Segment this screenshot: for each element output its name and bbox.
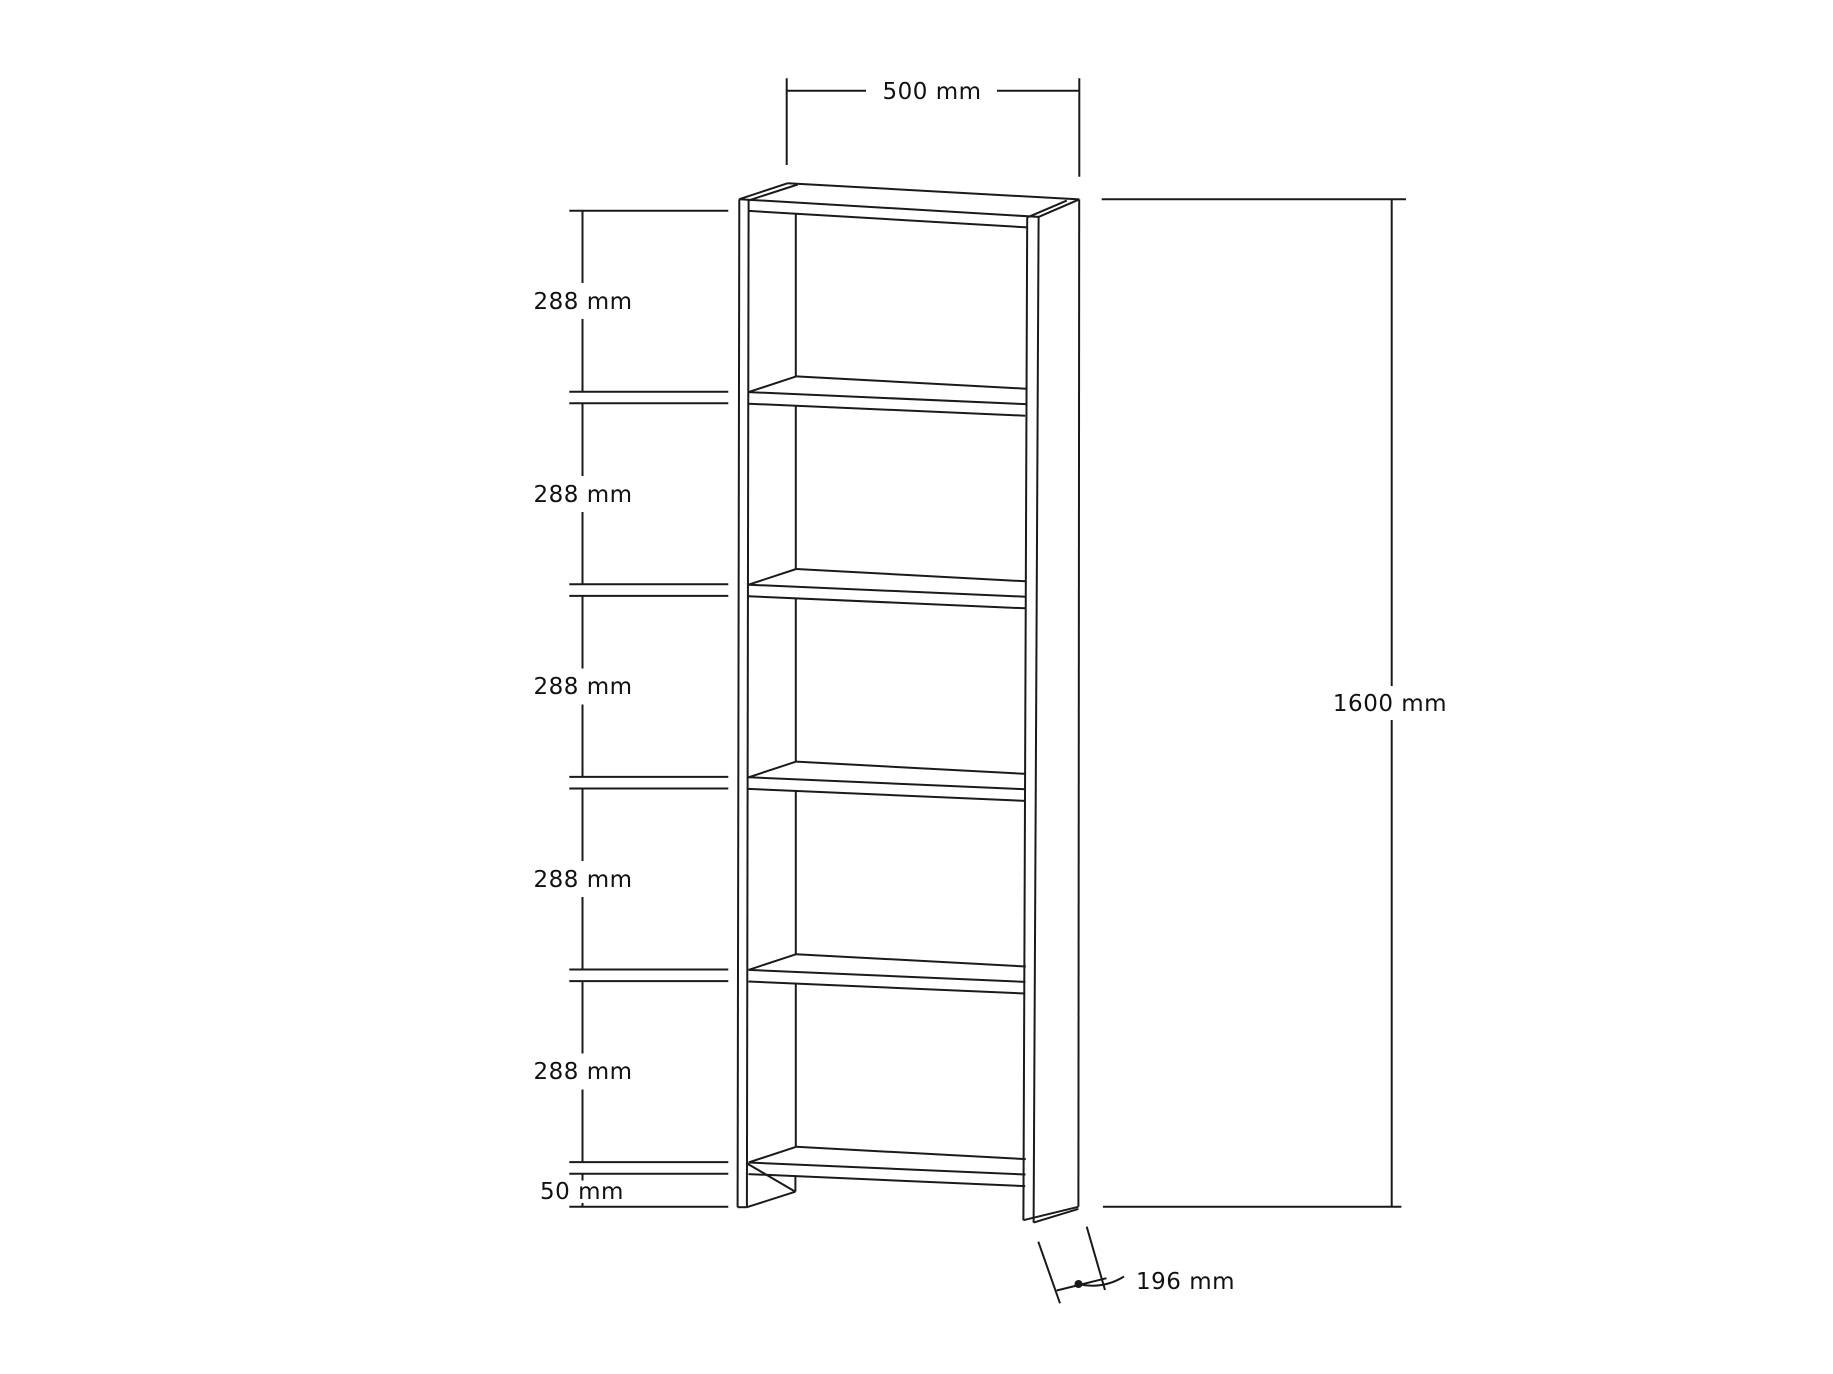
shelf-5 [749,1147,1026,1186]
bookshelf-dimension-diagram: 500 mm 1600 mm 288 mm 288 mm 288 mm 288 … [0,0,1833,1374]
shelf-spacing-label-5: 288 mm [533,1059,632,1085]
shelf-3 [749,762,1026,801]
shelf-spacing-label-3: 288 mm [533,674,632,700]
right-panel-top-outer-diagonal [1039,199,1080,217]
right-panel-top-inner-diagonal [1027,201,1067,218]
depth-dimension-label: 196 mm [1136,1269,1235,1295]
bottom-clearance-label: 50 mm [540,1179,624,1205]
left-panel-top-inner-diagonal [749,185,798,201]
top-panel-front-top-edge [739,199,1038,217]
right-panel-front-right-edge [1034,217,1039,1223]
right-side-panel [1023,199,1079,1222]
height-dimension-label: 1600 mm [1333,691,1447,717]
dimension-height: 1600 mm [1102,199,1447,1206]
shelf-spacing-label-4: 288 mm [533,867,632,893]
diagram-canvas: 500 mm 1600 mm 288 mm 288 mm 288 mm 288 … [0,0,1833,1374]
shelf-spacing-label-2: 288 mm [533,482,632,508]
shelf-1 [749,376,1026,415]
base-left [747,1163,796,1207]
shelf-2 [749,569,1026,608]
shelf-spacing-label-1: 288 mm [533,289,632,315]
left-panel-outer-front-edge [738,199,740,1207]
right-panel-front-left-edge [1023,217,1027,1220]
bookshelf-drawing [738,183,1080,1222]
base-left-floor-edge [747,1192,796,1208]
left-panel-inner-front-edge [747,200,749,1207]
left-side-panel [738,183,798,1207]
left-panel-top-outer-diagonal [739,183,788,199]
right-panel-back-edge [1078,199,1079,1206]
dimension-depth: 196 mm [1038,1227,1235,1304]
dimension-chain-left: 288 mm 288 mm 288 mm 288 mm 288 mm 50 mm [533,211,728,1207]
width-dimension-label: 500 mm [882,79,981,105]
base-left-diagonal [747,1163,796,1191]
top-panel [739,183,1079,227]
dimension-width: 500 mm [787,78,1080,176]
depth-ext-line-front [1038,1242,1060,1304]
shelf-4 [749,954,1026,993]
top-panel-back-edge [788,183,1079,199]
